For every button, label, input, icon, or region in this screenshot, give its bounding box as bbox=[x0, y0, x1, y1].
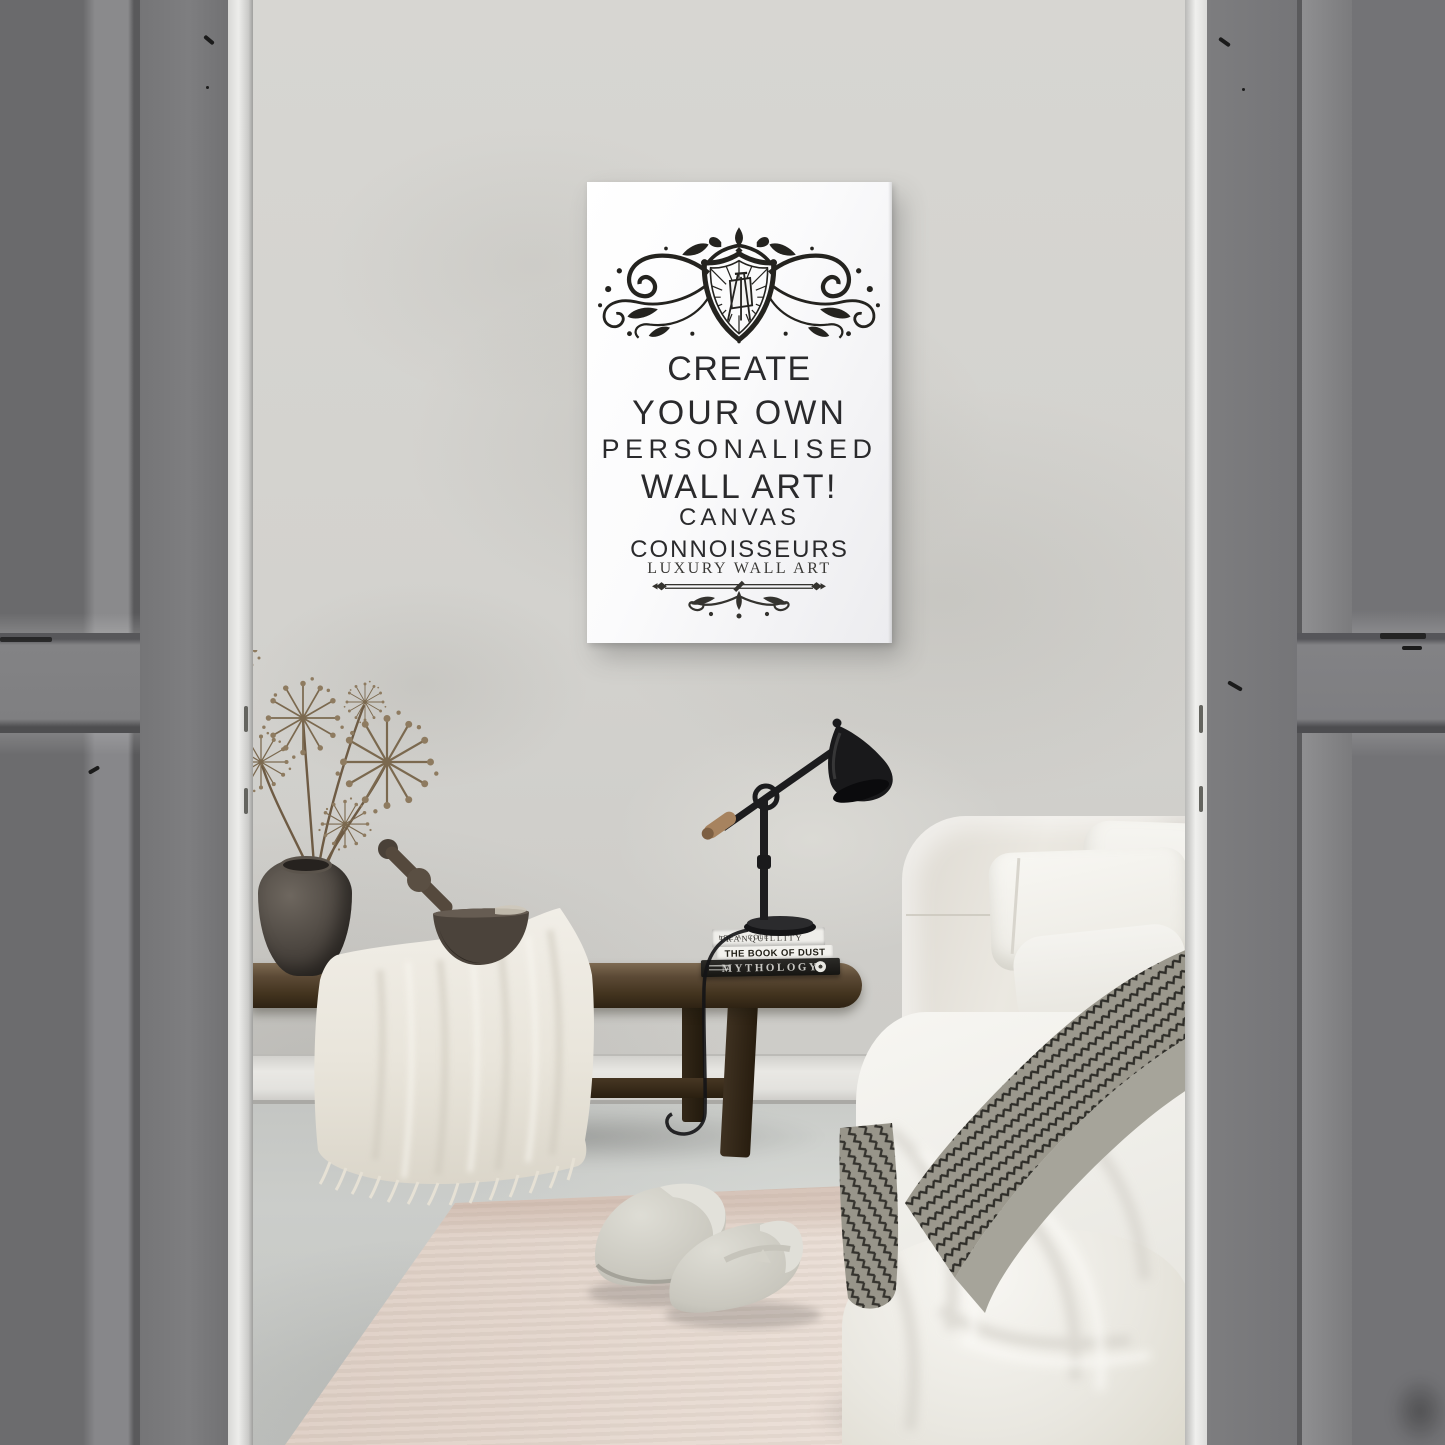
scuff-mark bbox=[1402, 646, 1422, 650]
poster-headline-line-1: CREATE bbox=[587, 350, 892, 389]
scuff-mark bbox=[0, 637, 52, 642]
poster-ornament-icon bbox=[651, 576, 827, 620]
scuff-mark bbox=[1242, 88, 1245, 91]
bench-back-leg bbox=[682, 998, 704, 1122]
poster-brand-line-1: CANVAS bbox=[587, 504, 892, 532]
door-hinge bbox=[1199, 786, 1203, 812]
poster-headline-line-2: YOUR OWN bbox=[587, 394, 892, 433]
door-hinge bbox=[244, 706, 248, 732]
bench-floor-shadow bbox=[330, 1108, 830, 1166]
left-door-lower-panel bbox=[0, 733, 140, 1445]
right-door-panel-bevel bbox=[1352, 733, 1445, 757]
right-door bbox=[1185, 0, 1445, 1445]
publisher-logo-icon bbox=[815, 961, 826, 972]
poster-headline-line-4: WALL ART! bbox=[587, 468, 892, 507]
right-door-frame bbox=[1185, 0, 1207, 1445]
smudge-mark bbox=[1390, 1375, 1445, 1445]
vase-opening bbox=[280, 856, 332, 874]
right-door-panel-bevel bbox=[1352, 610, 1445, 633]
left-door-upper-panel bbox=[0, 0, 140, 633]
right-door-stile bbox=[1207, 0, 1297, 1445]
left-door-frame bbox=[228, 0, 253, 1445]
book-title: MYTHOLOGY bbox=[722, 961, 820, 975]
left-door bbox=[0, 0, 253, 1445]
scuff-mark bbox=[1380, 633, 1426, 639]
bench-stretcher bbox=[545, 1078, 747, 1098]
crest-shield-icon bbox=[595, 224, 883, 344]
left-door-stile bbox=[140, 0, 228, 1445]
duvet-fold bbox=[842, 1230, 1190, 1445]
scuff-mark bbox=[206, 86, 209, 89]
poster-headline-line-3: PERSONALISED bbox=[587, 434, 892, 465]
wall-art-poster: CREATE YOUR OWN PERSONALISED WALL ART! C… bbox=[587, 182, 892, 643]
right-door-rail bbox=[1297, 633, 1445, 733]
book-author: LEE A. COLE bbox=[719, 934, 770, 942]
door-hinge bbox=[244, 788, 248, 814]
left-door-rail bbox=[0, 633, 140, 733]
bedroom-mockup-photo: CREATE YOUR OWN PERSONALISED WALL ART! C… bbox=[0, 0, 1445, 1445]
book-mythology: MYTHOLOGY bbox=[701, 958, 840, 977]
door-hinge bbox=[1199, 705, 1203, 733]
